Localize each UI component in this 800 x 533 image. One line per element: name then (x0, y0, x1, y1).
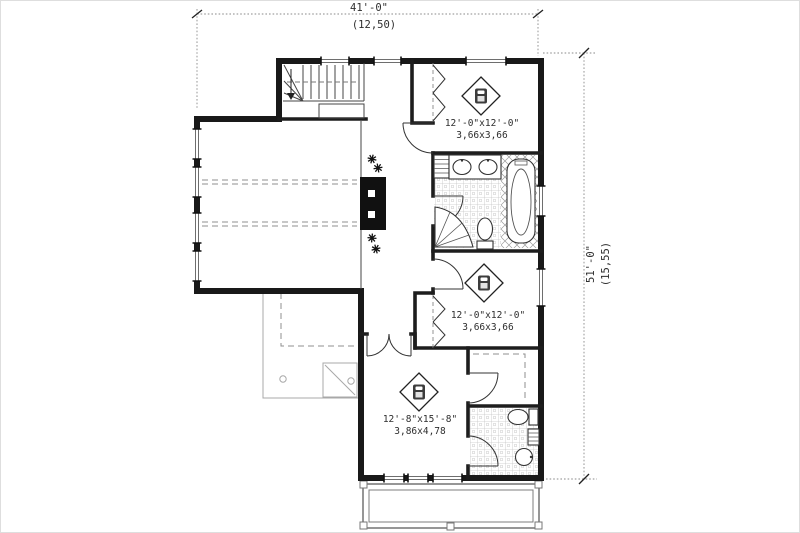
plant-icon (367, 233, 377, 243)
window (408, 474, 428, 483)
railing-post (447, 523, 454, 530)
dimension-right: 51'-0" (15,55) (543, 48, 612, 484)
walkin-closet (473, 354, 525, 402)
roof-panel-diagonal (325, 365, 355, 395)
bed-icon (413, 385, 425, 400)
ceiling-break-lines (202, 180, 357, 226)
fireplace-detail (368, 190, 375, 197)
roof-vent (348, 378, 354, 384)
door-walkin-closet (468, 373, 498, 403)
height-metric-label: (15,55) (600, 242, 612, 286)
bedroom2-closet-walls (415, 293, 433, 348)
window (537, 186, 546, 216)
window (433, 474, 462, 483)
double-door-master (367, 334, 411, 356)
faucet (461, 159, 463, 161)
roof-vent (280, 376, 286, 382)
window (193, 251, 202, 281)
bedroom-master-size-imperial: 12'-8"x15'-8" (383, 414, 457, 425)
pedestal-sink (516, 449, 533, 466)
door-bedroom-middle (433, 259, 463, 289)
bifold-door-bedroom-top-closet (433, 63, 445, 121)
living-room (202, 121, 386, 289)
plant-icon (366, 153, 377, 164)
window (537, 269, 546, 306)
plant-icon (373, 163, 383, 173)
window (321, 57, 349, 66)
closet-shelving (473, 354, 525, 402)
room-marker-bedroom-top (462, 77, 500, 115)
roof-dashed-line (281, 293, 357, 346)
linen-shelves (434, 155, 449, 178)
bathtub (507, 159, 535, 243)
room-marker-bedroom-master (400, 373, 438, 411)
floor-plan-page: 41'-0" (12,50) 51'-0" (15,55) (0, 0, 800, 533)
window (193, 129, 202, 159)
height-imperial-label: 51'-0" (585, 245, 597, 283)
bedroom5-closet-walls (412, 61, 433, 123)
bed-icon (478, 276, 490, 291)
stair-landing (319, 104, 364, 118)
bedroom-master-size-metric: 3,86x4,78 (394, 426, 446, 437)
railing-post (360, 481, 367, 488)
toilet (477, 218, 493, 249)
balcony (360, 481, 542, 530)
window (374, 57, 401, 66)
sink (479, 160, 497, 175)
width-imperial-label: 41'-0" (350, 2, 388, 14)
railing-post (535, 481, 542, 488)
window (193, 167, 202, 197)
tub-faucet (515, 161, 527, 165)
width-metric-label: (12,50) (352, 19, 396, 31)
railing-post (360, 522, 367, 529)
roof-outline-below (263, 293, 359, 398)
bedroom-middle-size-metric: 3,66x3,66 (462, 322, 514, 333)
balcony-railing-outer (363, 484, 539, 528)
plant-icon (370, 243, 382, 255)
window (384, 474, 404, 483)
bifold-door-bedroom-middle-closet (433, 295, 445, 348)
room-marker-bedroom-middle (465, 264, 503, 302)
bed-icon (475, 89, 487, 104)
balcony-railing-inner (369, 490, 533, 522)
bedroom-middle-size-imperial: 12'-0"x12'-0" (451, 310, 525, 321)
sink (453, 160, 471, 175)
fireplace (360, 177, 386, 230)
toilet (508, 409, 538, 425)
window (466, 57, 506, 66)
window (193, 213, 202, 243)
bedroom-top-size-metric: 3,66x3,66 (456, 130, 508, 141)
railing-post (535, 522, 542, 529)
bedroom-top-size-imperial: 12'-0"x12'-0" (445, 118, 519, 129)
door-bedroom-top (403, 123, 433, 153)
floor-plan-svg: 41'-0" (12,50) 51'-0" (15,55) (1, 1, 800, 533)
faucet (487, 159, 489, 161)
fireplace-detail (368, 211, 375, 218)
staircase (283, 63, 364, 118)
